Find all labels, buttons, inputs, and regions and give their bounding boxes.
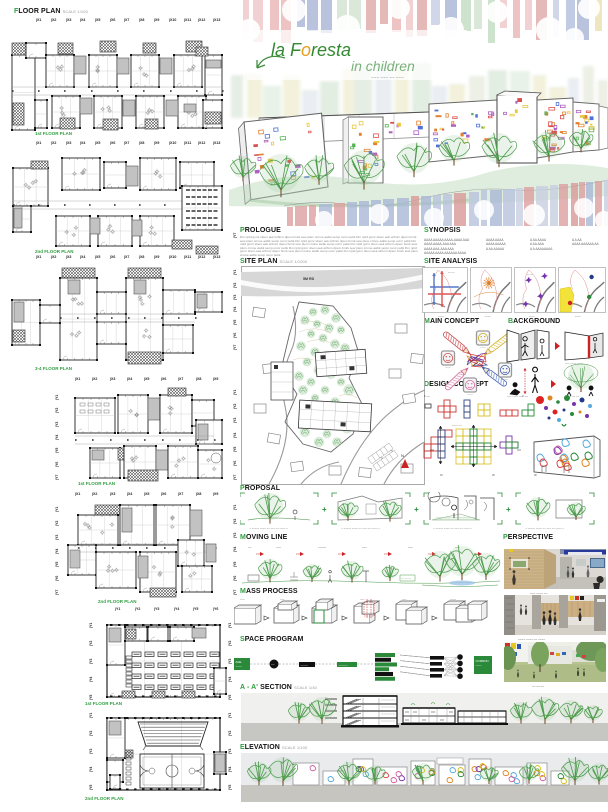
svg-text:~~ ~~: ~~ ~~: [527, 273, 534, 276]
svg-text:1 ~~: 1 ~~: [424, 394, 430, 398]
svg-text:|Y4: |Y4: [55, 435, 59, 440]
svg-text:|Y2: |Y2: [233, 519, 237, 524]
svg-text:|Y1: |Y1: [228, 623, 232, 628]
svg-text:2F: 2F: [492, 473, 495, 477]
svg-text:+: +: [414, 505, 419, 514]
svg-text:|X2: |X2: [92, 492, 97, 496]
svg-text:|Y4: |Y4: [174, 607, 179, 611]
svg-text:~~~: ~~~: [408, 545, 413, 549]
svg-text:~~ ~~: ~~ ~~: [448, 271, 455, 274]
svg-text:|X10: |X10: [169, 18, 176, 22]
svg-text:2nd FLOOR PLAN: 2nd FLOOR PLAN: [85, 796, 124, 801]
svg-text:|X1: |X1: [36, 141, 41, 145]
svg-text:~~~: ~~~: [240, 598, 245, 601]
svg-text:|Y1: |Y1: [115, 607, 120, 611]
svg-text:|Y1: |Y1: [89, 623, 93, 628]
svg-text:~~~~: ~~~~: [236, 664, 243, 668]
svg-text:~~~~~: ~~~~~: [301, 664, 309, 667]
svg-text:|X1: |X1: [36, 255, 41, 259]
svg-text:|Y3: |Y3: [228, 659, 232, 664]
svg-text:|Y3: |Y3: [55, 535, 59, 540]
svg-text:1st FLOOR PLAN: 1st FLOOR PLAN: [35, 131, 72, 136]
svg-text:|Y1: |Y1: [55, 395, 59, 400]
svg-text:~ ~~~~~ ~~~~ ~~ ~~~ ~~ ~~~~ ~: ~ ~~~~~ ~~~~ ~~ ~~~ ~~ ~~~~ ~: [249, 527, 288, 530]
svg-text:|Y6: |Y6: [213, 607, 218, 611]
svg-text:|X9: |X9: [213, 377, 218, 381]
svg-text:|Y5: |Y5: [228, 695, 232, 700]
svg-text:|X9: |X9: [154, 255, 159, 259]
svg-text:|Y2: |Y2: [228, 731, 232, 736]
svg-text:|X4: |X4: [80, 18, 85, 22]
svg-text:|Y7: |Y7: [233, 590, 237, 595]
svg-text:|Y2: |Y2: [89, 731, 93, 736]
svg-text:|Y2: |Y2: [135, 607, 140, 611]
svg-text:|X13: |X13: [213, 18, 220, 22]
svg-text:|Y4: |Y4: [233, 307, 237, 312]
svg-text:|X9: |X9: [154, 141, 159, 145]
svg-text:|X3: |X3: [66, 141, 71, 145]
svg-text:~~~~: ~~~~: [480, 347, 486, 350]
svg-text:|X5: |X5: [95, 18, 100, 22]
svg-text:|X11: |X11: [184, 141, 191, 145]
svg-text:|Y5: |Y5: [233, 447, 237, 452]
svg-text:|X7: |X7: [124, 141, 129, 145]
svg-text:~~~~: ~~~~: [529, 316, 536, 319]
svg-text:|X6: |X6: [110, 141, 115, 145]
svg-text:~~: ~~: [318, 598, 322, 601]
svg-text:1st FLOOR PLAN: 1st FLOOR PLAN: [78, 481, 115, 486]
svg-text:|X13: |X13: [213, 255, 220, 259]
svg-text:|Y4: |Y4: [55, 549, 59, 554]
svg-text:~~~~: ~~~~: [445, 367, 451, 370]
svg-text:COMMON: COMMON: [476, 659, 489, 663]
svg-text:|Y3: |Y3: [233, 533, 237, 538]
svg-text:|X8: |X8: [139, 141, 144, 145]
svg-text:|Y7: |Y7: [55, 590, 59, 595]
svg-text:|X11: |X11: [184, 18, 191, 22]
svg-text:|X4: |X4: [80, 141, 85, 145]
svg-text:|Y1: |Y1: [55, 507, 59, 512]
svg-text:|Y6: |Y6: [55, 462, 59, 467]
svg-text:|Y2: |Y2: [233, 404, 237, 409]
svg-text:|X2: |X2: [51, 141, 56, 145]
svg-text:|Y7: |Y7: [233, 475, 237, 480]
svg-text:~~~: ~~~: [276, 545, 281, 549]
svg-text:|Y3: |Y3: [89, 659, 93, 664]
svg-text:|Y5: |Y5: [89, 695, 93, 700]
svg-text:|Y6: |Y6: [233, 576, 237, 581]
svg-text:|Y3: |Y3: [233, 418, 237, 423]
svg-text:1st FLOOR PLAN: 1st FLOOR PLAN: [85, 701, 122, 706]
svg-text:|Y5: |Y5: [193, 607, 198, 611]
svg-text:|X7: |X7: [124, 255, 129, 259]
svg-text:~~~~~: ~~~~~: [318, 545, 327, 549]
svg-text:~~~: ~~~: [280, 598, 285, 601]
svg-text:~~~: ~~~: [360, 598, 365, 601]
svg-text:in children: in children: [351, 58, 415, 74]
svg-text:|X1: |X1: [36, 18, 41, 22]
svg-text:~~~~: ~~~~: [485, 316, 492, 319]
svg-text:|Y7: |Y7: [233, 233, 237, 238]
svg-text:|X1: |X1: [75, 492, 80, 496]
svg-text:~~~: ~~~: [362, 545, 367, 549]
svg-text:|X5: |X5: [144, 492, 149, 496]
svg-text:|X7: |X7: [124, 18, 129, 22]
svg-text:|X12: |X12: [198, 255, 205, 259]
svg-text:|X8: |X8: [196, 377, 201, 381]
svg-text:2 ~~: 2 ~~: [522, 394, 528, 398]
svg-text:|Y1: |Y1: [233, 390, 237, 395]
svg-text:|Y3: |Y3: [228, 749, 232, 754]
svg-text:|Y4: |Y4: [89, 767, 93, 772]
svg-text:|X2: |X2: [92, 377, 97, 381]
svg-text:|Y6: |Y6: [233, 461, 237, 466]
svg-text:~~ ~~ ~~: ~~ ~~ ~~: [401, 578, 412, 581]
svg-text:|Y4: |Y4: [228, 677, 232, 682]
svg-text:|X6: |X6: [161, 377, 166, 381]
svg-text:|X6: |X6: [161, 492, 166, 496]
svg-text:|X8: |X8: [139, 18, 144, 22]
svg-text:|Y1: |Y1: [89, 713, 93, 718]
svg-text:|Y4: |Y4: [233, 433, 237, 438]
svg-text:|X7: |X7: [178, 492, 183, 496]
svg-text:~~: ~~: [271, 663, 275, 667]
svg-text:|X6: |X6: [110, 255, 115, 259]
svg-text:|Y1: |Y1: [233, 505, 237, 510]
svg-text:|Y4: |Y4: [233, 547, 237, 552]
svg-text:|Y2: |Y2: [89, 641, 93, 646]
svg-text:|Y3: |Y3: [154, 607, 159, 611]
svg-text:|Y5: |Y5: [233, 320, 237, 325]
svg-text:2nd FLOOR PLAN: 2nd FLOOR PLAN: [35, 249, 74, 254]
svg-text:|X12: |X12: [198, 18, 205, 22]
svg-text:N: N: [401, 453, 404, 458]
svg-text:|X10: |X10: [169, 255, 176, 259]
svg-text:|X10: |X10: [169, 141, 176, 145]
svg-text:|X7: |X7: [178, 377, 183, 381]
svg-text:~~~~~~: ~~~~~~: [339, 664, 349, 667]
svg-text:|X13: |X13: [213, 141, 220, 145]
svg-text:~~~~: ~~~~: [438, 316, 445, 319]
svg-text:~~~~: ~~~~: [575, 316, 582, 319]
svg-text:~ ~~~~~ ~~~~ ~~ ~~~ ~~ ~~~~ ~: ~ ~~~~~ ~~~~ ~~ ~~~ ~~ ~~~~ ~: [525, 527, 564, 530]
svg-text:|Y7: |Y7: [55, 475, 59, 480]
svg-text:|X4: |X4: [127, 492, 132, 496]
svg-text:|X11: |X11: [184, 255, 191, 259]
svg-text:~~: ~~: [248, 545, 252, 549]
svg-text:~ ~~~~~ ~~~~ ~~ ~~~ ~~ ~~~~ ~: ~ ~~~~~ ~~~~ ~~ ~~~ ~~ ~~~~ ~: [433, 527, 472, 530]
svg-text:|X8: |X8: [196, 492, 201, 496]
svg-text:|Y2: |Y2: [228, 641, 232, 646]
svg-text:|Y1: |Y1: [233, 270, 237, 275]
svg-text:|X12: |X12: [198, 141, 205, 145]
svg-text:2nd FLOOR PLAN: 2nd FLOOR PLAN: [98, 599, 137, 604]
svg-text:|Y2: |Y2: [55, 408, 59, 413]
svg-text:|Y3: |Y3: [233, 295, 237, 300]
svg-text:|X4: |X4: [127, 377, 132, 381]
svg-text:|X4: |X4: [80, 255, 85, 259]
svg-text:|Y4: |Y4: [228, 767, 232, 772]
svg-text:|Y4: |Y4: [89, 677, 93, 682]
svg-text:|X9: |X9: [154, 18, 159, 22]
svg-text:|Y5: |Y5: [228, 785, 232, 790]
svg-text:~~~ ~~~ ~~ ~~~: ~~~ ~~~ ~~ ~~~: [371, 75, 404, 80]
svg-text:|X3: |X3: [110, 492, 115, 496]
svg-text:~~~~ ~~: ~~~~ ~~: [452, 424, 462, 427]
svg-text:|Y6: |Y6: [233, 333, 237, 338]
svg-text:|Y5: |Y5: [55, 448, 59, 453]
svg-text:|X3: |X3: [66, 255, 71, 259]
svg-text:5M RD: 5M RD: [303, 277, 315, 281]
svg-text:|X6: |X6: [110, 18, 115, 22]
svg-text:|X5: |X5: [95, 141, 100, 145]
svg-text:|X2: |X2: [51, 255, 56, 259]
svg-text:|X8: |X8: [139, 255, 144, 259]
svg-text:3-4 FLOOR PLAN: 3-4 FLOOR PLAN: [35, 366, 72, 371]
svg-text:~~~: ~~~: [402, 598, 407, 601]
svg-text:|X2: |X2: [51, 18, 56, 22]
svg-text:|Y1: |Y1: [228, 713, 232, 718]
svg-text:|Y2: |Y2: [233, 283, 237, 288]
svg-text:|Y5: |Y5: [233, 562, 237, 567]
svg-text:|Y3: |Y3: [55, 422, 59, 427]
svg-text:|Y7: |Y7: [233, 345, 237, 350]
svg-text:|Y5: |Y5: [89, 785, 93, 790]
svg-text:|X5: |X5: [144, 377, 149, 381]
svg-text:~ ~~~~~ ~~~~ ~~ ~~~ ~~ ~~~~ ~: ~ ~~~~~ ~~~~ ~~ ~~~ ~~ ~~~~ ~: [341, 527, 380, 530]
svg-text:|Y5: |Y5: [55, 562, 59, 567]
svg-text:la Foresta: la Foresta: [271, 40, 351, 60]
svg-text:~~~~: ~~~~: [476, 664, 483, 667]
svg-text:|X5: |X5: [95, 255, 100, 259]
svg-text:|Y3: |Y3: [89, 749, 93, 754]
svg-text:~~~~: ~~~~: [450, 598, 457, 601]
svg-text:+: +: [506, 505, 511, 514]
svg-text:1F: 1F: [440, 473, 443, 477]
svg-text:|X3: |X3: [66, 18, 71, 22]
svg-text:|X3: |X3: [110, 377, 115, 381]
svg-text:|Y2: |Y2: [55, 521, 59, 526]
svg-text:|Y6: |Y6: [55, 576, 59, 581]
svg-text:|X1: |X1: [75, 377, 80, 381]
svg-text:3F: 3F: [534, 473, 537, 477]
svg-text:|X9: |X9: [213, 492, 218, 496]
svg-text:+: +: [322, 505, 327, 514]
